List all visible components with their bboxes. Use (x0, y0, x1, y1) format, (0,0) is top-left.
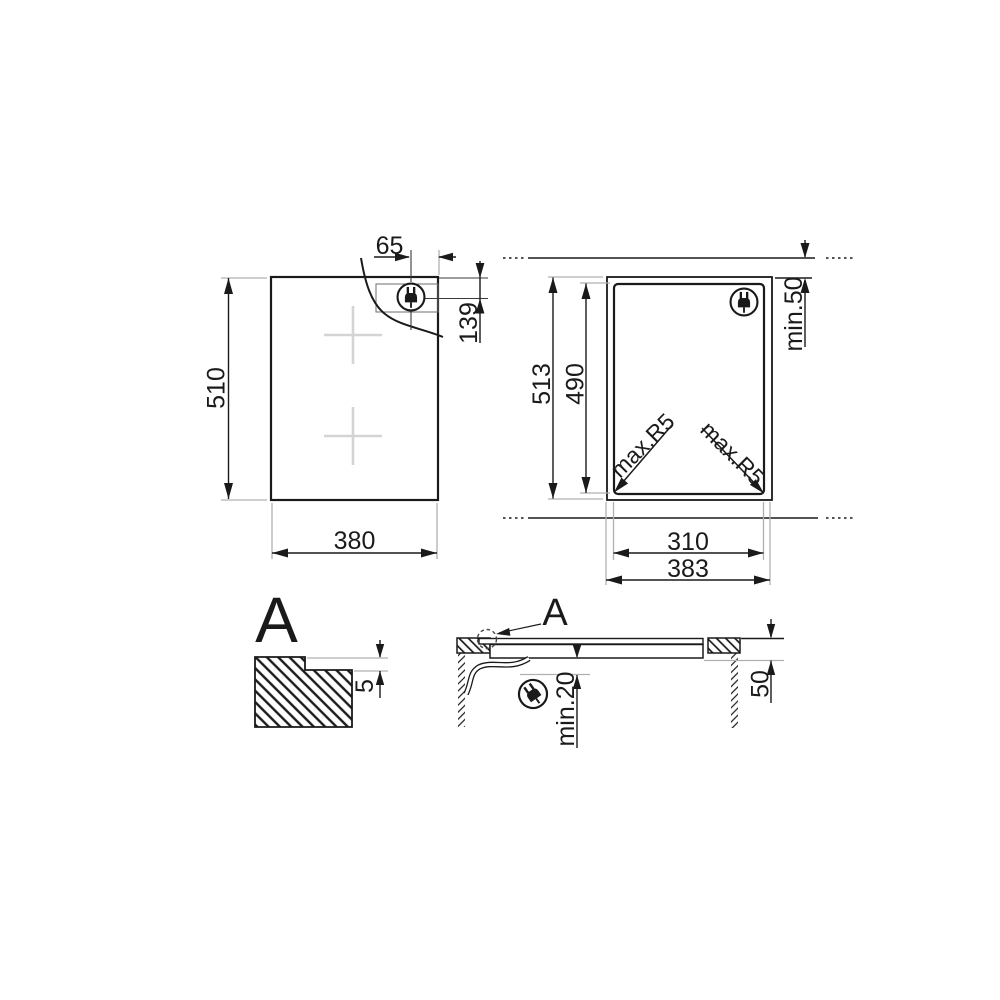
dim-label-5: 5 (351, 679, 379, 693)
cabinet-wall-left (458, 653, 465, 727)
detail-a-view: A 5 (255, 584, 388, 727)
dim-wall-clearance-min50: min.50 (775, 240, 812, 352)
power-plug-icon (513, 674, 552, 713)
power-plug-icon (398, 284, 425, 311)
plan-view: 510 380 65 139 (203, 232, 489, 559)
worktop-rabbet-section (255, 657, 352, 727)
technical-drawing-canvas: 510 380 65 139 (0, 0, 1000, 1000)
dim-label-min20: min.20 (552, 671, 580, 746)
dim-label-310: 310 (667, 528, 709, 556)
detail-a-label: A (255, 584, 298, 656)
dim-label-min50: min.50 (780, 276, 808, 351)
dim-recess-depth-50: 50 (704, 619, 784, 703)
dim-label-380: 380 (334, 527, 376, 555)
dim-label-490: 490 (562, 363, 590, 405)
worktop-section-right (708, 638, 740, 653)
installation-diagram: 510 380 65 139 (0, 0, 1000, 1000)
dim-label-139: 139 (455, 302, 483, 344)
cutout-view: 513 490 min.50 max.R5 m (503, 240, 853, 585)
dim-plug-offset-65: 65 (374, 232, 456, 282)
dim-label-383: 383 (667, 555, 709, 583)
cabinet-wall-right (731, 653, 738, 728)
hob-glass-section (479, 639, 703, 645)
dim-height-510: 510 (203, 278, 268, 500)
section-view: A min.20 (457, 592, 784, 748)
dim-width-380: 380 (272, 503, 437, 559)
dim-label-65: 65 (376, 232, 404, 260)
hob-body-section (490, 645, 703, 659)
detail-a-leader-arrow (496, 628, 510, 636)
dim-label-513: 513 (528, 363, 556, 405)
dim-inner-width-310: 310 (614, 502, 764, 560)
dim-label-510: 510 (203, 367, 231, 409)
section-a-label: A (542, 592, 568, 634)
dim-label-50: 50 (747, 670, 775, 698)
power-plug-icon (731, 289, 758, 316)
dim-inner-height-490: 490 (562, 283, 611, 493)
